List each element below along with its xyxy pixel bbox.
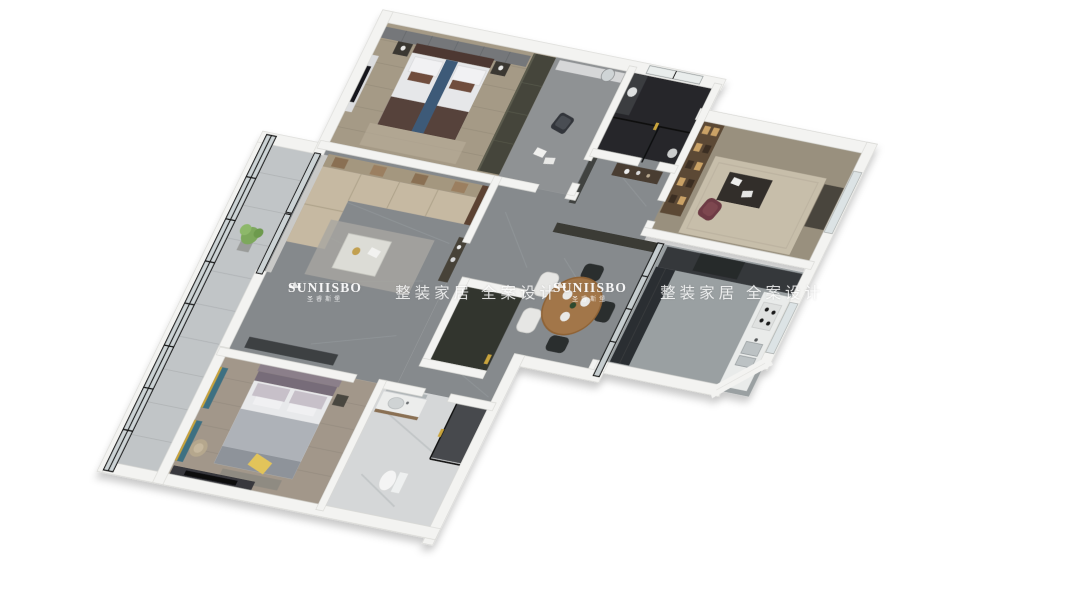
floorplan-scene: SUNIISBO 圣睿斯堡 整装家居 全案设计 SUNIISBO 圣睿斯堡 整装… [0, 0, 1080, 608]
apartment-plan [94, 0, 892, 591]
floorplan-3d-render [0, 0, 1080, 608]
